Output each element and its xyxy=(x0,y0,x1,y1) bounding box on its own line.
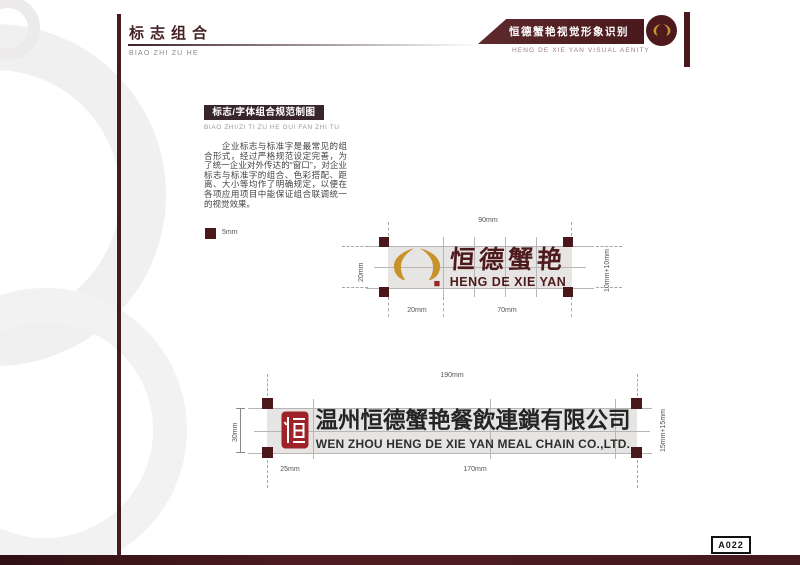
d2-height-bracket xyxy=(240,408,241,453)
d2-gridline xyxy=(248,453,652,454)
seal-icon xyxy=(281,411,309,449)
d1-corner-mark xyxy=(379,287,389,297)
d1-ext-line xyxy=(443,297,444,317)
right-rule-bar xyxy=(684,12,690,67)
d1-dim-top: 90mm xyxy=(455,217,521,224)
d1-dim-bottom-right: 70mm xyxy=(480,307,534,314)
vi-manual-page: 标志组合 BIAO ZHI ZU HE 恒德蟹艳视觉形象识别 HENG DE X… xyxy=(0,0,800,565)
d2-corner-mark xyxy=(262,447,273,458)
grid-unit-swatch xyxy=(205,228,216,239)
footer-bar xyxy=(0,555,800,565)
d1-ext-line xyxy=(342,287,368,288)
d1-dim-left: 20mm xyxy=(358,263,365,282)
watermark-swirl xyxy=(0,0,210,565)
d2-dim-right: 15mm+15mm xyxy=(660,409,667,452)
section-title: 标志/字体组合规范制图 xyxy=(204,105,324,120)
section-title-pinyin: BIAO ZHI/ZI TI ZU HE GUI FAN ZHI TU xyxy=(204,124,340,131)
d2-dim-top: 190mm xyxy=(419,372,485,379)
d2-ext-line xyxy=(637,460,638,488)
d1-ext-line xyxy=(571,297,572,317)
d2-dim-bottom-right: 170mm xyxy=(420,466,530,473)
banner-title: 恒德蟹艳视觉形象识别 xyxy=(478,19,644,44)
d1-corner-mark xyxy=(379,237,389,247)
d2-ext-line xyxy=(267,374,268,396)
d2-corner-mark xyxy=(262,398,273,409)
d2-ext-line xyxy=(267,460,268,488)
d1-ext-line xyxy=(596,246,622,247)
d2-height-bracket xyxy=(236,452,245,453)
brand-circle-icon xyxy=(646,15,677,46)
d1-dim-bottom-left: 20mm xyxy=(397,307,437,314)
logo-mark-icon xyxy=(653,24,671,38)
d2-height-bracket xyxy=(236,408,245,409)
page-title: 标志组合 xyxy=(129,22,213,43)
left-rule-bar xyxy=(117,14,121,556)
section-body-text: 企业标志与标准字是最常见的组合形式，经过严格规范设定完善，为了统一企业对外传达的… xyxy=(204,142,347,209)
d1-logotype-cn: 恒德蟹艳 xyxy=(443,245,573,275)
d1-dim-right: 10mm+10mm xyxy=(604,249,611,292)
page-number-badge: A022 xyxy=(711,536,751,554)
d1-ext-line xyxy=(388,222,389,236)
d2-dim-left: 30mm xyxy=(232,423,239,442)
d2-ext-line xyxy=(637,374,638,396)
logo-mark-icon xyxy=(393,248,441,288)
d1-ext-line xyxy=(342,246,368,247)
header-banner: 恒德蟹艳视觉形象识别 xyxy=(478,19,644,44)
d1-ext-line xyxy=(388,297,389,317)
banner-subtitle: HENG DE XIE YAN VISUAL AENITY xyxy=(512,47,650,54)
d2-dim-bottom-left: 25mm xyxy=(268,466,312,473)
d2-logotype-en: WEN ZHOU HENG DE XIE YAN MEAL CHAIN CO.,… xyxy=(312,437,634,451)
d1-ext-line xyxy=(571,222,572,236)
title-underline xyxy=(128,44,480,46)
d2-logotype-cn: 温州恒德蟹艳餐飲連鎖有限公司 xyxy=(312,407,634,435)
d1-logotype-en: HENG DE XIE YAN xyxy=(444,275,572,289)
page-title-pinyin: BIAO ZHI ZU HE xyxy=(129,50,199,57)
grid-unit-label: 5mm xyxy=(222,229,238,236)
